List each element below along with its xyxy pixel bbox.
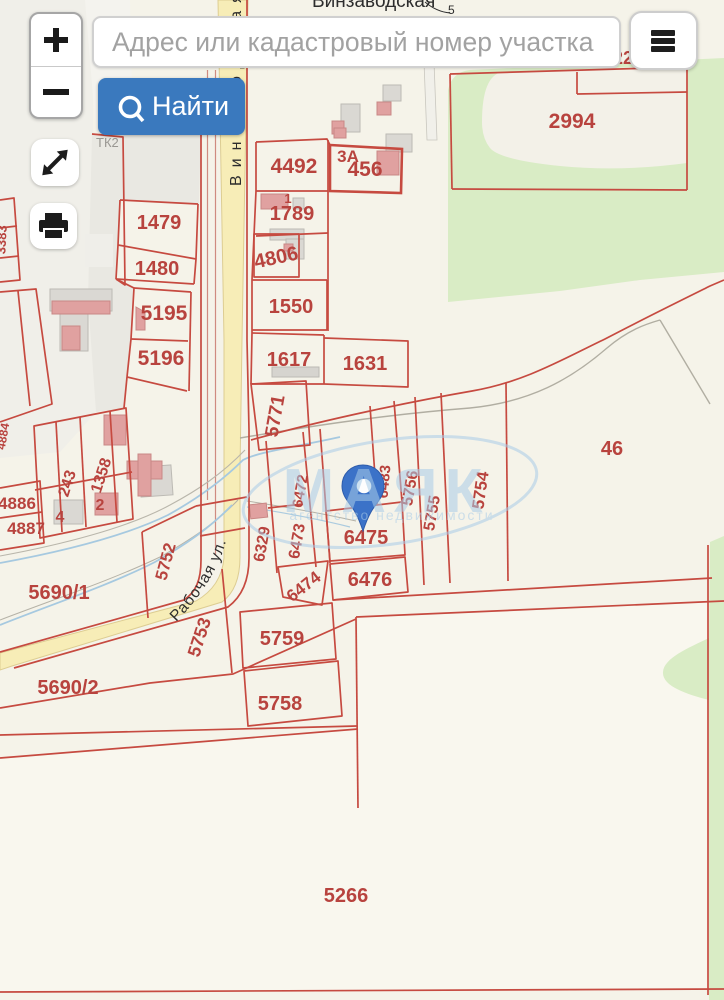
- svg-text:4492: 4492: [271, 155, 318, 178]
- svg-text:5690/2: 5690/2: [37, 677, 98, 699]
- svg-text:5759: 5759: [260, 628, 305, 650]
- svg-text:1617: 1617: [267, 349, 312, 371]
- svg-text:4886: 4886: [0, 494, 36, 513]
- svg-text:456: 456: [347, 158, 382, 181]
- svg-text:4: 4: [56, 509, 65, 526]
- svg-text:1480: 1480: [135, 258, 180, 280]
- svg-text:1: 1: [284, 191, 291, 206]
- svg-text:1550: 1550: [269, 296, 314, 318]
- svg-text:1631: 1631: [343, 353, 388, 375]
- svg-text:Винзаводская: Винзаводская: [312, 0, 435, 12]
- svg-text:5195: 5195: [141, 302, 188, 325]
- svg-text:5690/1: 5690/1: [28, 582, 89, 604]
- svg-text:2: 2: [96, 497, 105, 514]
- svg-text:агентство недвижимости: агентство недвижимости: [289, 507, 494, 523]
- svg-text:5758: 5758: [258, 693, 303, 715]
- svg-text:5: 5: [448, 3, 455, 17]
- svg-text:46: 46: [601, 438, 623, 460]
- svg-text:ТК2: ТК2: [96, 135, 119, 150]
- svg-text:6476: 6476: [348, 569, 393, 591]
- svg-text:1789: 1789: [270, 203, 315, 225]
- svg-text:3383: 3383: [0, 225, 10, 255]
- svg-text:5196: 5196: [138, 347, 185, 370]
- svg-text:1479: 1479: [137, 212, 182, 234]
- svg-text:2994: 2994: [549, 110, 596, 133]
- svg-text:4887: 4887: [7, 519, 45, 538]
- svg-text:5266: 5266: [324, 885, 369, 907]
